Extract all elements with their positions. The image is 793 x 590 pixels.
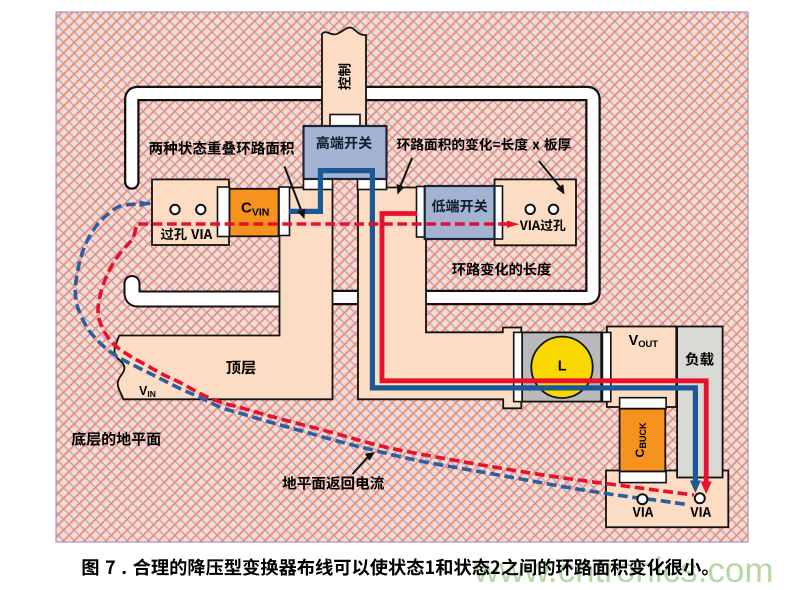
- svg-text:www.cntronics.com: www.cntronics.com: [473, 551, 774, 590]
- svg-text:C: C: [633, 449, 647, 458]
- svg-text:BUCK: BUCK: [638, 422, 648, 448]
- svg-text:L: L: [558, 359, 567, 375]
